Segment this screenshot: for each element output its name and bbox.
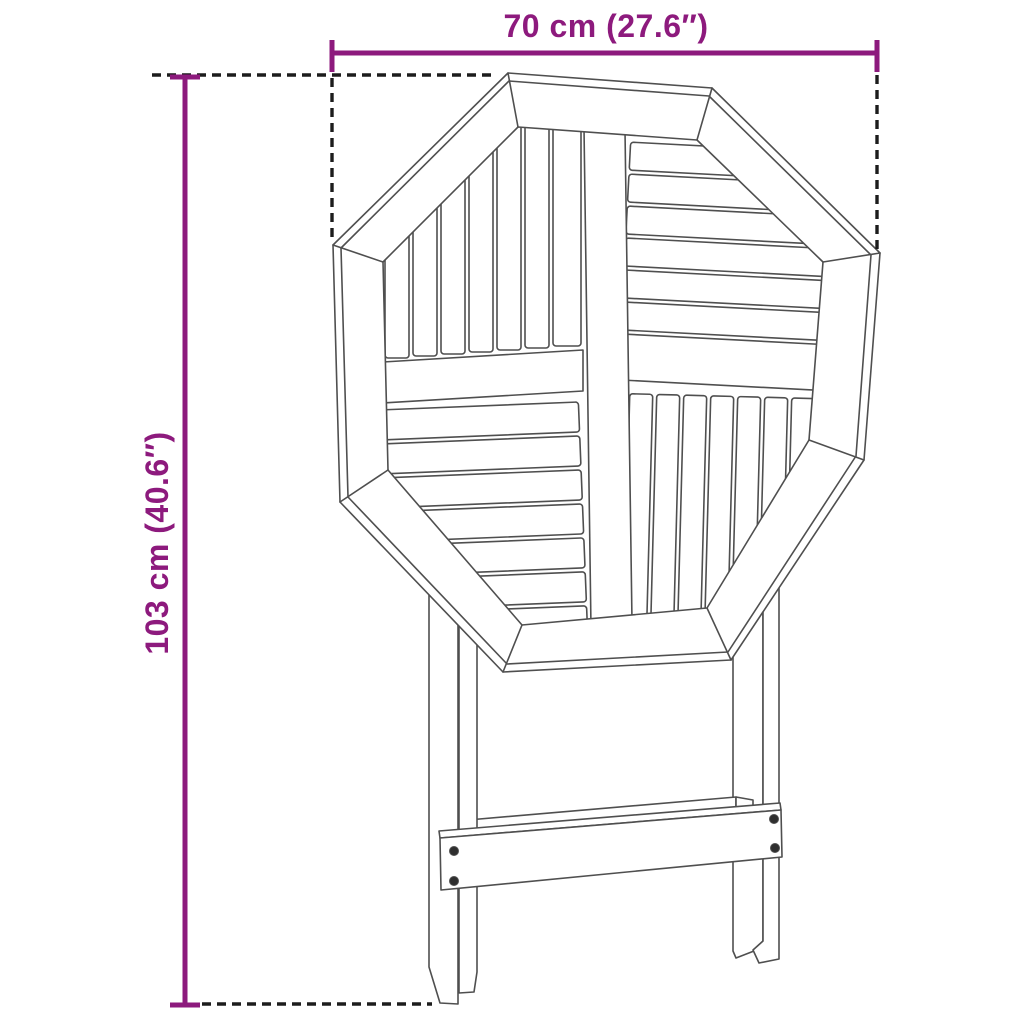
product-dimension-diagram: 70 cm (27.6″) 103 cm (40.6″) [0,0,1024,1024]
screw-icon [450,847,459,856]
page: { "page": { "background_color": "#ffffff… [0,0,1024,1024]
height-dimension-label: 103 cm (40.6″) [139,431,175,654]
screw-icon [771,844,780,853]
board-center [584,128,632,628]
screw-icon [450,877,459,886]
screw-icon [770,815,779,824]
folding-table-illustration [326,60,911,1004]
width-dimension-label: 70 cm (27.6″) [503,8,708,44]
